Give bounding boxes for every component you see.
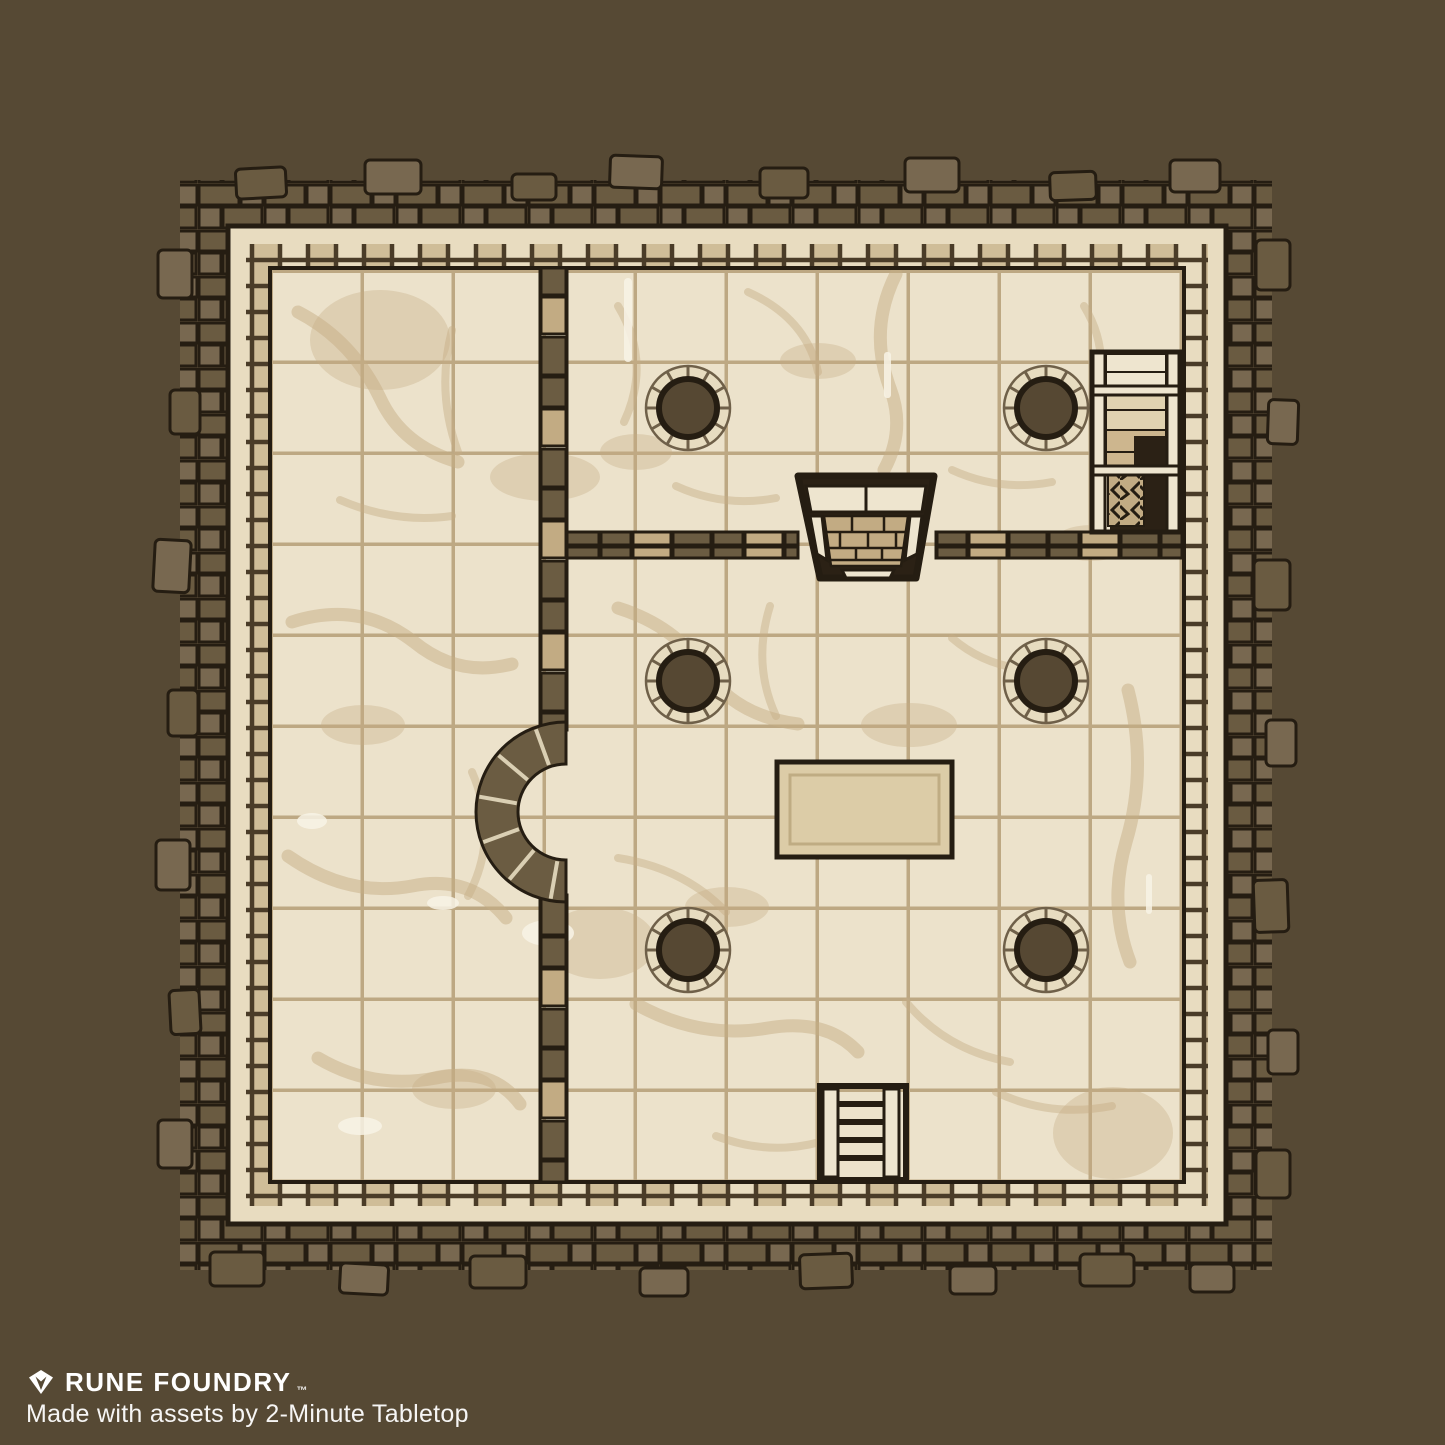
- watermark: RUNE FOUNDRY ™ Made with assets by 2-Min…: [26, 1367, 469, 1429]
- descending-staircase: [1092, 352, 1180, 532]
- stone-table: [777, 762, 952, 857]
- stone-pillar: [1004, 639, 1088, 723]
- stone-pillar: [1004, 366, 1088, 450]
- stone-pillar: [646, 639, 730, 723]
- battlemap-image: RUNE FOUNDRY ™ Made with assets by 2-Min…: [0, 0, 1445, 1445]
- brand-row: RUNE FOUNDRY ™: [26, 1367, 469, 1397]
- brand-name: RUNE FOUNDRY: [65, 1368, 291, 1397]
- stone-pillar: [646, 908, 730, 992]
- stone-pillar: [646, 366, 730, 450]
- stone-pillar: [1004, 908, 1088, 992]
- trademark-symbol: ™: [296, 1385, 307, 1397]
- battlemap-canvas: [0, 0, 1445, 1445]
- credit-line: Made with assets by 2-Minute Tabletop: [26, 1400, 469, 1429]
- rune-foundry-logo-icon: [26, 1367, 56, 1397]
- stairwell-hatch: [798, 476, 934, 578]
